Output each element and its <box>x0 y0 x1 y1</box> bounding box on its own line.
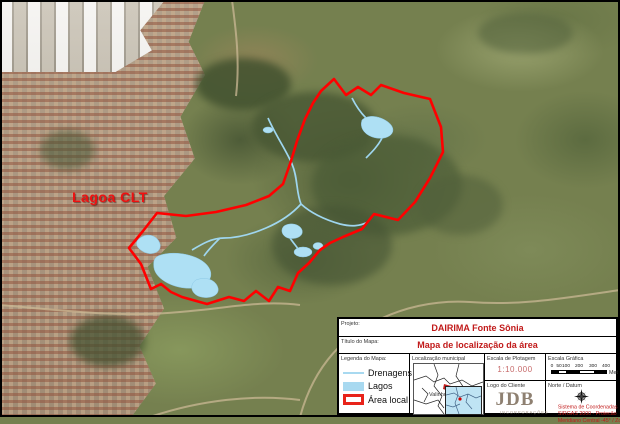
project-row: Projeto: DAIRIMA Fonte Sônia <box>339 319 616 337</box>
scale-tick: 0 <box>551 363 554 368</box>
plot-scale-cell: Escala de Plotagem 1:10.000 <box>485 354 546 380</box>
scale-unit: Metros <box>609 369 620 375</box>
client-logo-name: JDB <box>485 390 545 409</box>
logo-north-row: Logo do Cliente JDB INCORPORAÇÕES Norte … <box>485 381 616 413</box>
scale-tick: 400 <box>602 363 610 368</box>
inset-cell: Localização municipal Valinhos <box>410 354 485 413</box>
legend-item-drenagens: Drenagens <box>343 368 409 378</box>
graphic-scale-cell: Escala Gráfica 0 50 100 200 300 400 Metr… <box>546 354 616 380</box>
map-title-value: Mapa de localização da área <box>339 337 616 350</box>
scale-bar: 0 50 100 200 300 400 Metros <box>550 363 620 379</box>
scale-tick: 50 <box>556 363 561 368</box>
drainage-line-swatch <box>343 372 364 374</box>
legend-item-label: Área local <box>368 395 408 405</box>
lake-fill-swatch <box>343 382 364 391</box>
city-dot <box>458 397 461 400</box>
legend-item-lagos: Lagos <box>343 381 409 391</box>
north-datum-header: Norte / Datum <box>548 382 582 388</box>
map-title-label: Título do Mapa: <box>341 338 379 344</box>
map-sheet: { "map": { "area_label": "Lagoa CLT", "c… <box>0 0 620 417</box>
scale-bar-segments <box>551 370 607 374</box>
scale-row: Escala de Plotagem 1:10.000 Escala Gráfi… <box>485 354 616 381</box>
plot-scale-header: Escala de Plotagem <box>487 355 535 361</box>
client-logo-subtitle: INCORPORAÇÕES <box>500 410 530 415</box>
datum-text: Sistema de Coordenadas SIRGAS 2000 - Pro… <box>558 404 604 424</box>
plot-scale-value: 1:10.000 <box>485 365 545 374</box>
scale-tick: 300 <box>589 363 597 368</box>
legend-item-label: Drenagens <box>368 368 412 378</box>
compass-rose-icon <box>574 389 589 404</box>
map-title-row: Título do Mapa: Mapa de localização da á… <box>339 337 616 354</box>
scale-tick: 200 <box>575 363 583 368</box>
municipal-inset-map: Valinhos <box>413 363 484 415</box>
datum-line: Meridiano Central -45° / Zona 23 <box>558 417 604 424</box>
legend-item-area-local: Área local <box>343 394 409 405</box>
scale-and-logo-column: Escala de Plotagem 1:10.000 Escala Gráfi… <box>485 354 616 413</box>
title-block: Projeto: DAIRIMA Fonte Sônia Título do M… <box>337 317 618 415</box>
project-value: DAIRIMA Fonte Sônia <box>339 319 616 333</box>
area-boundary-polygon <box>129 79 443 304</box>
area-outline-swatch <box>343 394 364 405</box>
lagoa-label: Lagoa CLT <box>72 189 148 205</box>
legend-cell: Legenda do Mapa: Drenagens Lagos Área lo… <box>339 354 410 413</box>
client-logo-cell: Logo do Cliente JDB INCORPORAÇÕES <box>485 381 546 413</box>
graphic-scale-header: Escala Gráfica <box>548 355 583 361</box>
legend-header: Legenda do Mapa: <box>341 355 386 361</box>
client-logo-header: Logo do Cliente <box>487 382 525 388</box>
scale-tick: 100 <box>562 363 570 368</box>
project-label: Projeto: <box>341 320 360 326</box>
title-block-bottom: Legenda do Mapa: Drenagens Lagos Área lo… <box>339 354 616 413</box>
north-datum-cell: Norte / Datum Sistema de Coordenadas SIR… <box>546 381 616 413</box>
state-sub-inset <box>445 386 482 415</box>
legend-item-label: Lagos <box>368 381 393 391</box>
inset-header: Localização municipal <box>412 355 465 361</box>
